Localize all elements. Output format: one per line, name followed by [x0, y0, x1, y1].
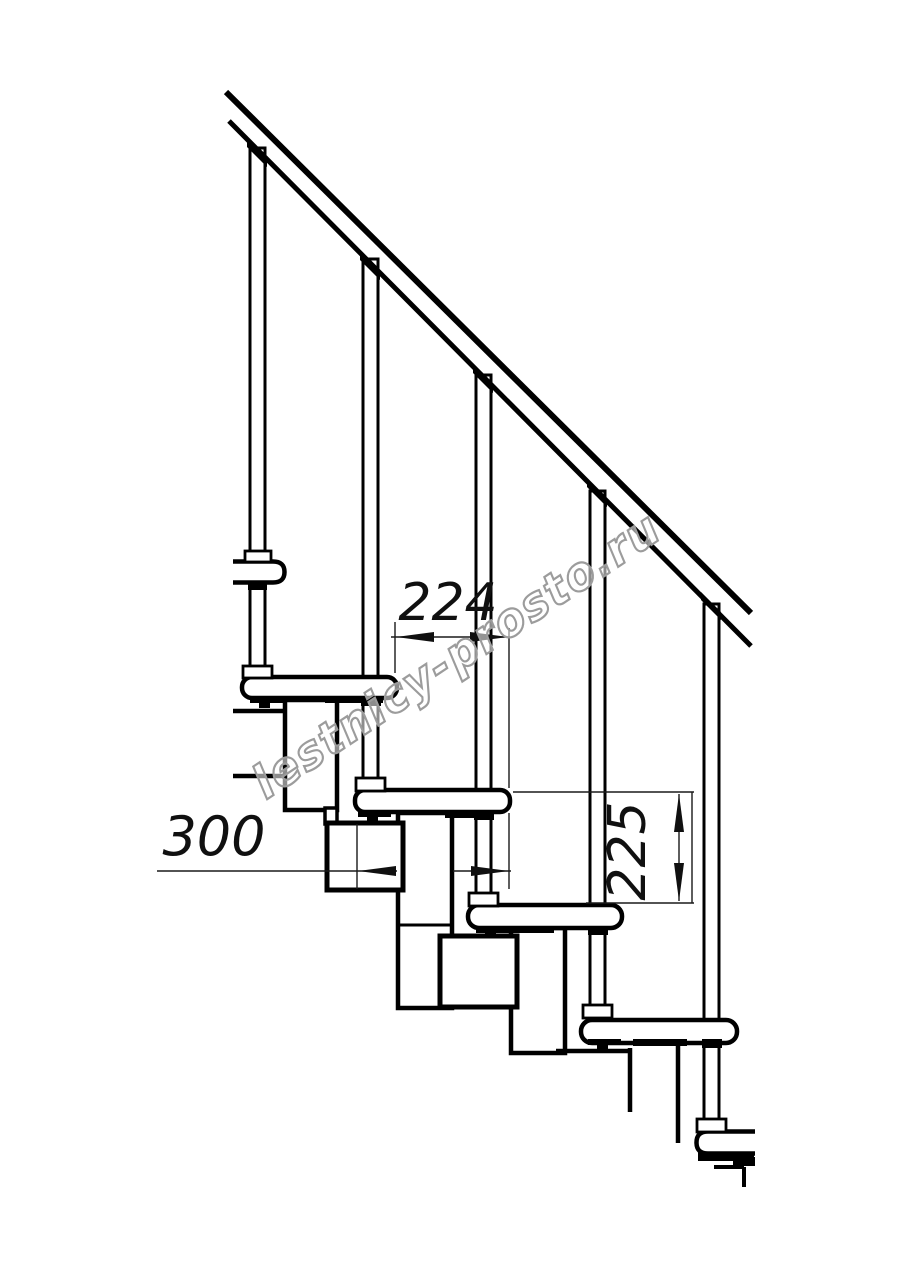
flange-strip-tread-3: [510, 926, 554, 933]
drawing-page: 224 300 225 lestnicy-prosto.ru: [0, 0, 914, 1280]
through-collar-b3: [474, 811, 494, 820]
through-collar-b5: [702, 1039, 722, 1048]
tread-5-stub: [697, 1132, 756, 1154]
foot-collar-b4: [583, 1005, 612, 1018]
tread-2: [355, 790, 510, 812]
foot-collar-b3: [469, 893, 498, 906]
flange-strip-tread-2: [445, 811, 476, 818]
baluster-5: [704, 604, 719, 1131]
staircase-technical-drawing: 224 300 225 lestnicy-prosto.ru: [0, 0, 914, 1280]
foot-collar-b1-stub: [245, 551, 271, 562]
tread-3: [468, 905, 622, 928]
baluster-1: [250, 148, 265, 677]
flange-strip-tread-4: [633, 1039, 687, 1046]
dim-value-rise: 225: [598, 801, 658, 900]
foot-collar-b1: [243, 666, 272, 678]
through-collar-b4: [588, 926, 608, 935]
module-box-3: [440, 936, 517, 1007]
foot-collar-b2: [356, 778, 385, 791]
tread-0-stub: [233, 562, 285, 583]
dim-value-tread-depth: 300: [162, 805, 265, 868]
module-box-2: [327, 823, 403, 890]
through-collar-b1: [248, 582, 267, 590]
foot-collar-b5: [697, 1119, 726, 1132]
clamp-tread-5b: [733, 1157, 755, 1166]
